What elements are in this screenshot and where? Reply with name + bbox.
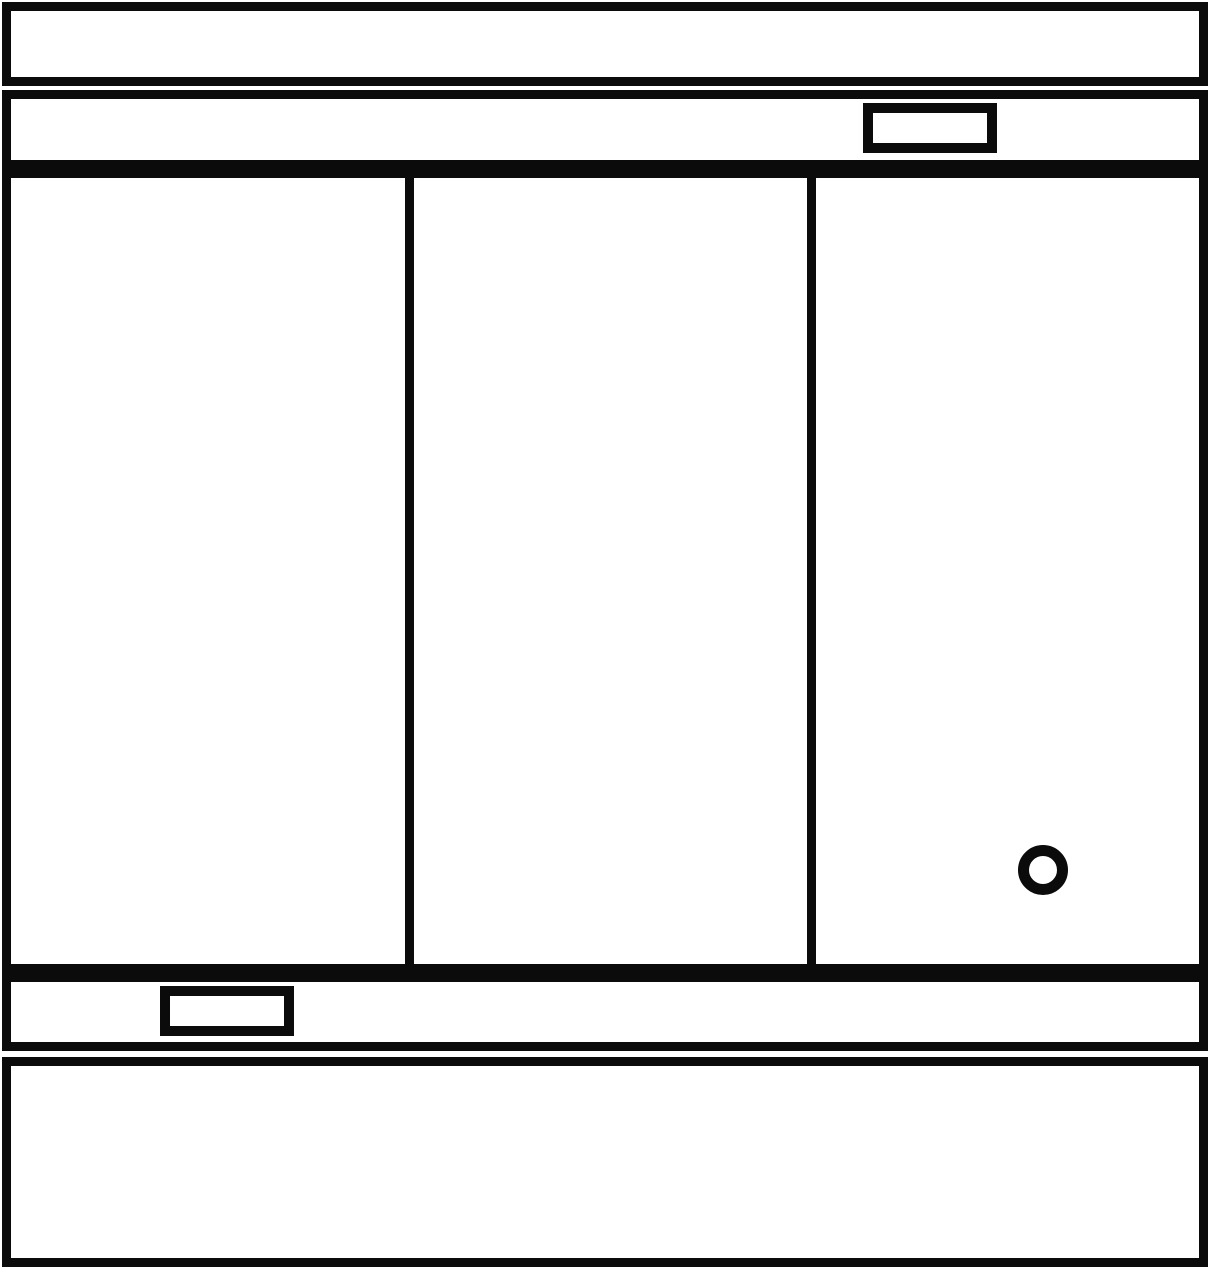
kick-badge-rectangle — [160, 986, 294, 1036]
line-drawing-canvas — [0, 0, 1214, 1275]
doors-row — [2, 169, 1208, 973]
control-panel-band — [2, 90, 1208, 169]
door-panel-center — [414, 178, 807, 964]
doors-inner — [11, 178, 1199, 964]
door-panel-left — [11, 178, 405, 964]
door-divider-left — [405, 178, 414, 964]
base-panel — [2, 1057, 1208, 1267]
knob-ring-icon — [1018, 845, 1068, 895]
door-panel-right — [816, 178, 1199, 964]
control-badge-rectangle — [863, 103, 997, 153]
door-divider-right — [807, 178, 816, 964]
kick-panel-band — [2, 973, 1208, 1051]
top-panel — [2, 2, 1208, 86]
